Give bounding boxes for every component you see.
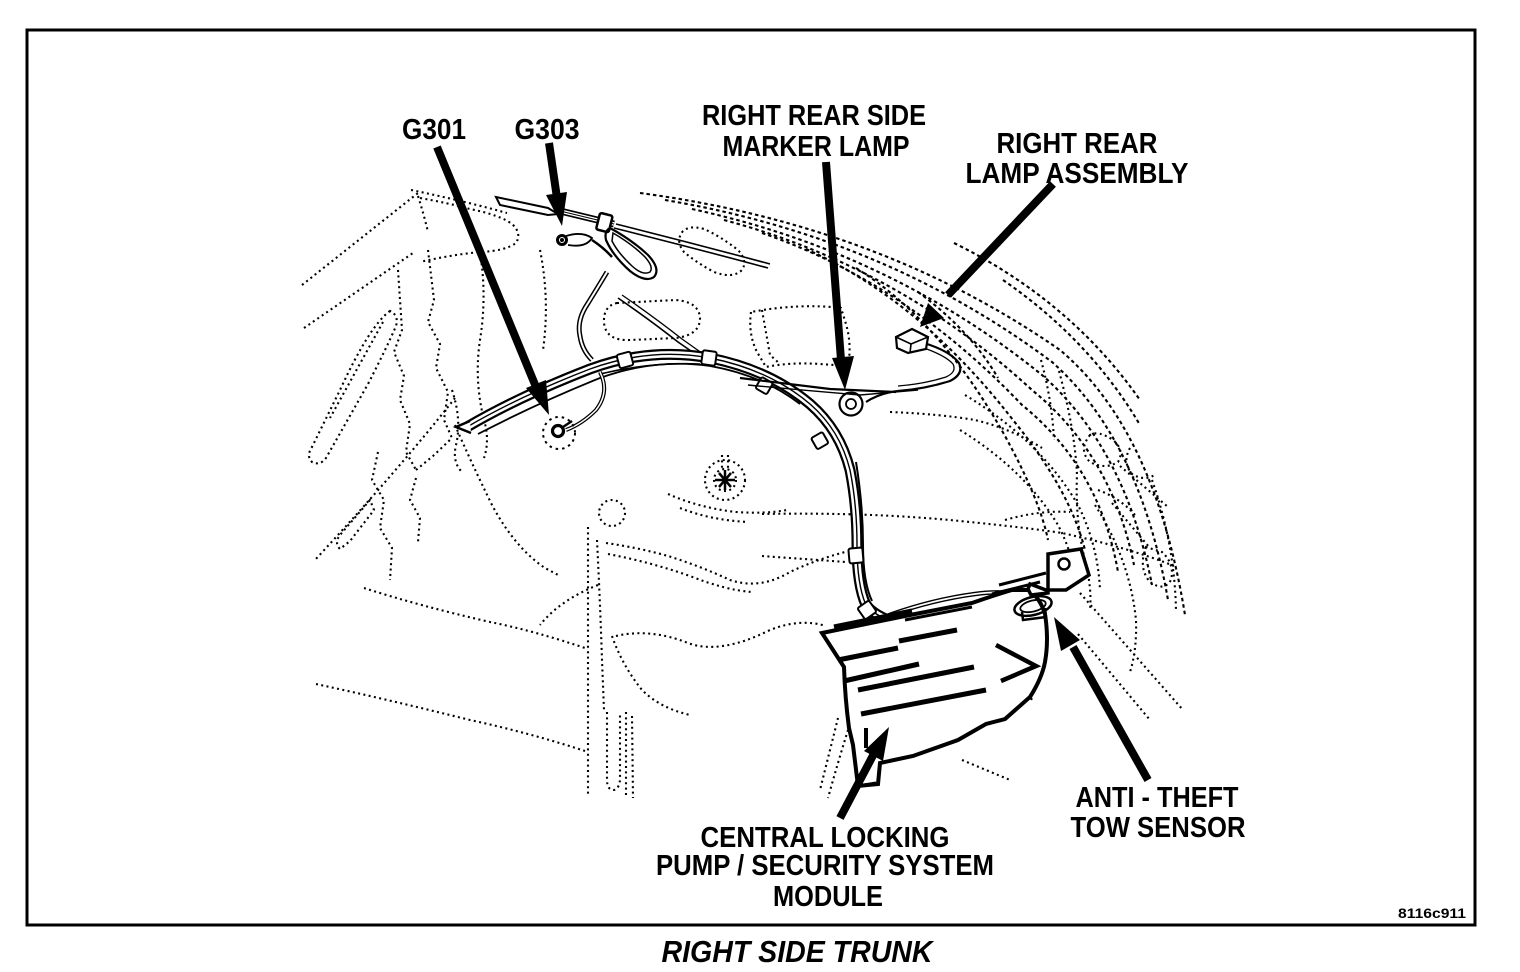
svg-text:G303: G303 xyxy=(515,114,580,146)
svg-text:RIGHT SIDE TRUNK: RIGHT SIDE TRUNK xyxy=(662,934,935,969)
svg-text:TOW SENSOR: TOW SENSOR xyxy=(1071,812,1246,844)
svg-text:PUMP / SECURITY SYSTEM: PUMP / SECURITY SYSTEM xyxy=(656,850,994,882)
svg-text:MARKER LAMP: MARKER LAMP xyxy=(723,131,910,163)
svg-text:RIGHT REAR: RIGHT REAR xyxy=(997,128,1158,160)
svg-text:8116c911: 8116c911 xyxy=(1398,905,1466,921)
svg-text:ANTI - THEFT: ANTI - THEFT xyxy=(1076,782,1239,814)
svg-text:G301: G301 xyxy=(402,114,466,146)
svg-text:MODULE: MODULE xyxy=(773,881,883,913)
svg-text:RIGHT REAR SIDE: RIGHT REAR SIDE xyxy=(702,100,926,132)
svg-text:LAMP ASSEMBLY: LAMP ASSEMBLY xyxy=(966,158,1189,190)
